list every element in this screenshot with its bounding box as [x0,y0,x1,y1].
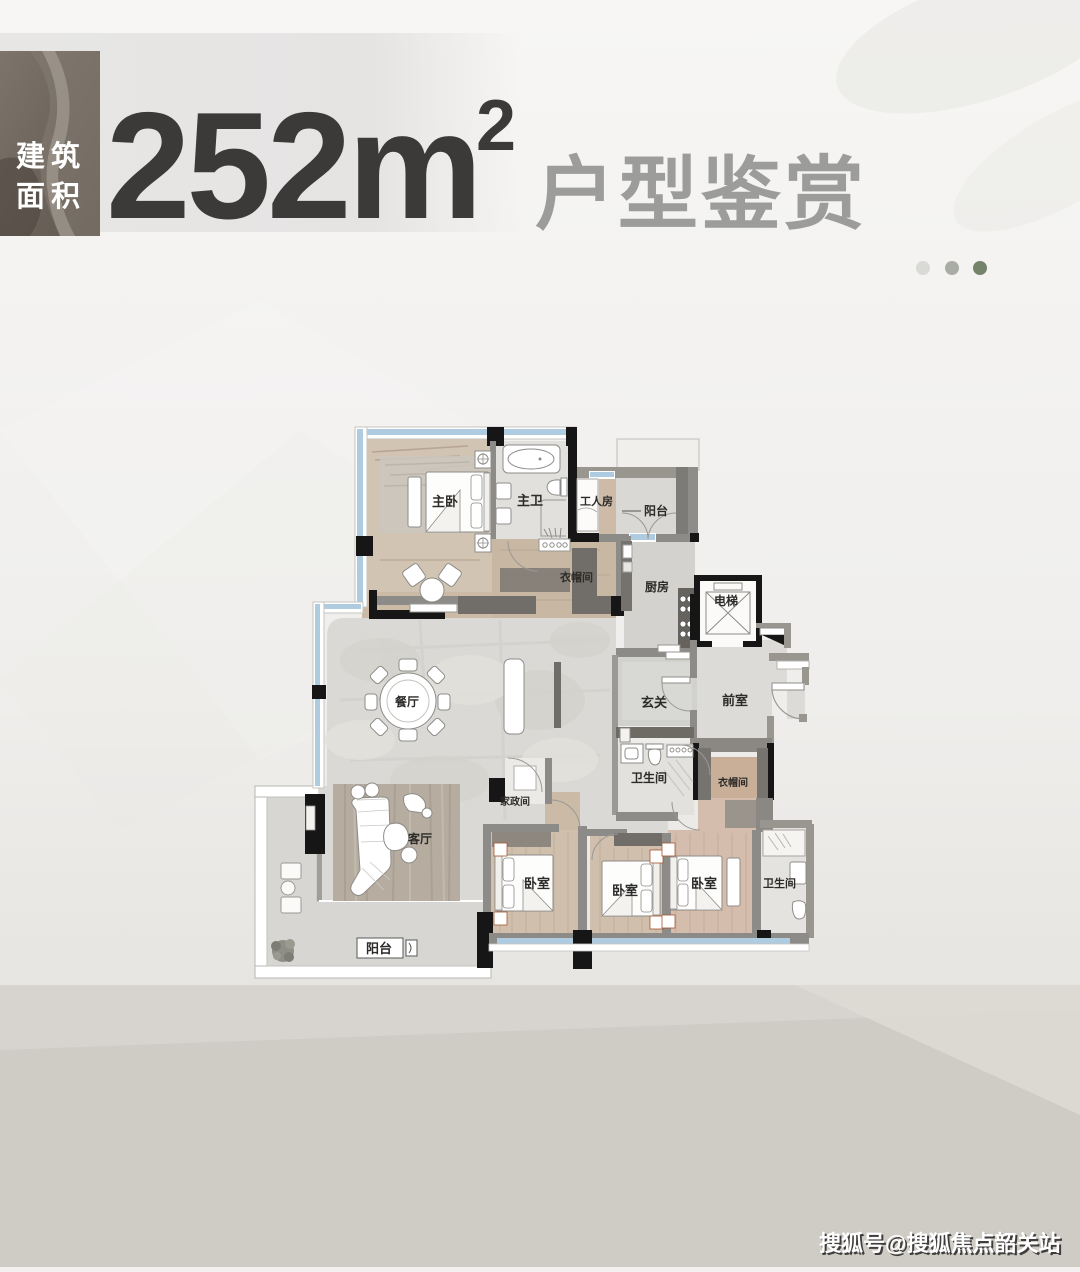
svg-text:电梯: 电梯 [714,593,738,608]
svg-text:卫生间: 卫生间 [631,770,667,785]
svg-text:客厅: 客厅 [407,831,432,846]
svg-text:户型鉴赏: 户型鉴赏 [535,150,867,239]
svg-text:建筑: 建筑 [16,140,86,173]
svg-text:卧室: 卧室 [612,883,638,898]
svg-text:搜狐号@搜狐焦点韶关站: 搜狐号@搜狐焦点韶关站 [819,1231,1060,1256]
svg-text:卧室: 卧室 [691,876,717,891]
svg-text:面积: 面积 [16,180,86,213]
svg-text:家政间: 家政间 [500,795,530,808]
svg-text:前室: 前室 [722,693,748,708]
svg-text:餐厅: 餐厅 [395,694,419,709]
svg-text:卫生间: 卫生间 [763,876,796,890]
svg-text:衣帽间: 衣帽间 [560,570,593,584]
svg-text:卧室: 卧室 [524,876,550,891]
svg-text:252m: 252m [106,81,479,251]
svg-text:衣帽间: 衣帽间 [718,776,748,789]
svg-text:工人房: 工人房 [580,494,613,508]
svg-text:主卫: 主卫 [517,493,543,508]
svg-text:厨房: 厨房 [645,579,669,594]
svg-text:玄关: 玄关 [641,695,667,710]
svg-text:2: 2 [476,86,516,166]
svg-text:阳台: 阳台 [366,941,392,956]
svg-text:主卧: 主卧 [432,494,458,509]
svg-text:阳台: 阳台 [644,503,668,518]
